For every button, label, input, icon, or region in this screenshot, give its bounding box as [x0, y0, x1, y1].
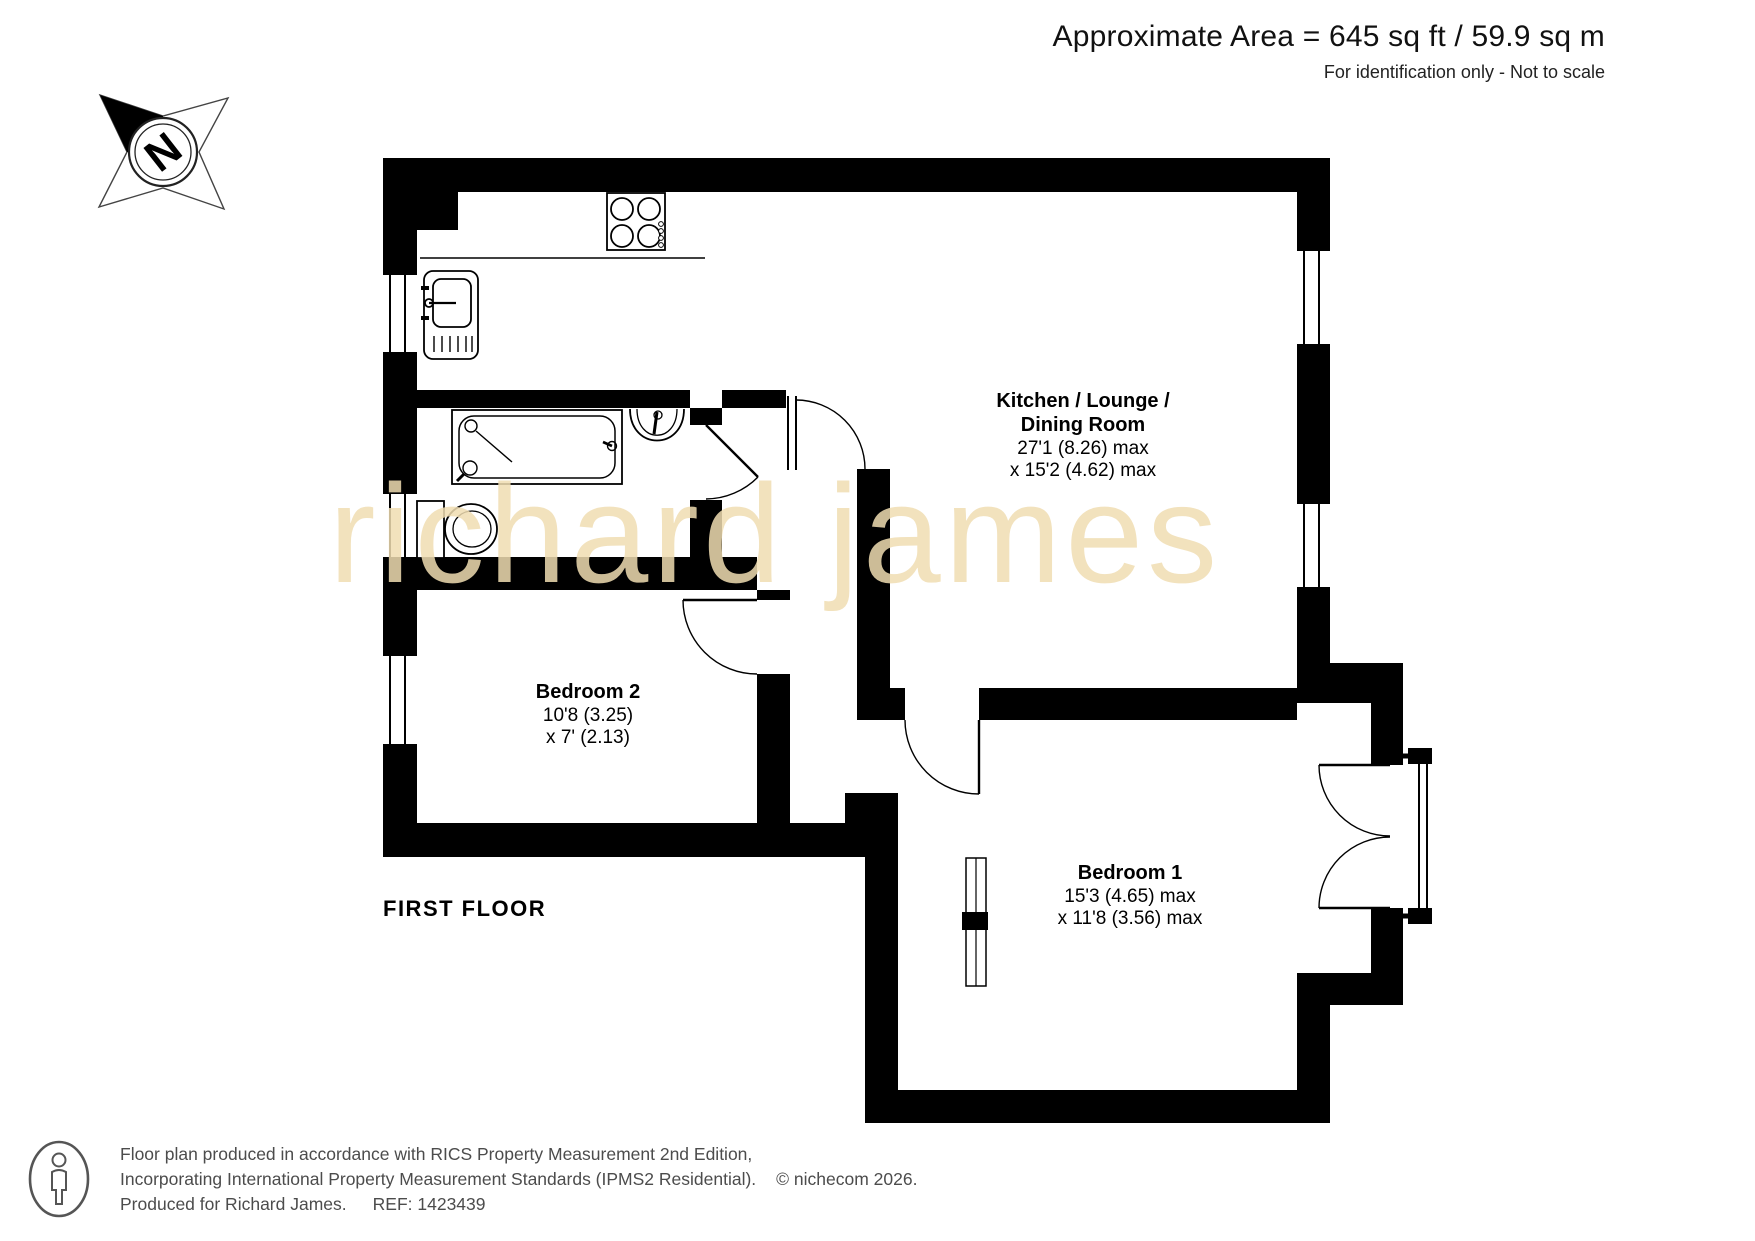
wall-kitchen-bath — [417, 390, 690, 408]
balcony-rail — [1403, 748, 1432, 924]
wall-right-1 — [1297, 192, 1330, 250]
wall-bedroom1-left — [865, 793, 898, 1123]
wall-lounge-bottom-b — [979, 688, 1297, 720]
window-kitchen — [383, 274, 417, 353]
footer-line-2-text: Incorporating International Property Mea… — [120, 1169, 756, 1189]
floor-label: FIRST FLOOR — [383, 896, 546, 921]
wall-bedroom1-right-down — [1371, 908, 1403, 973]
window-lounge-2 — [1297, 503, 1330, 588]
footer-text: Floor plan produced in accordance with R… — [120, 1142, 917, 1217]
kitchen-dim-1: 27'1 (8.26) max — [1017, 438, 1149, 459]
footer-line-3: Produced for Richard James.REF: 1423439 — [120, 1192, 917, 1217]
window-bedroom2 — [383, 655, 417, 745]
wall-bath-right-a — [690, 408, 722, 425]
walls — [383, 158, 1403, 1123]
hob-icon — [607, 193, 665, 250]
label-kitchen-lounge: Kitchen / Lounge / Dining Room 27'1 (8.2… — [996, 390, 1170, 481]
wall-step-back — [1297, 973, 1403, 1005]
person-logo-icon — [26, 1138, 92, 1220]
bedroom1-dim-2: x 11'8 (3.56) max — [1058, 908, 1203, 929]
kitchen-sink-icon — [421, 271, 478, 359]
wall-step-out — [1297, 663, 1403, 703]
footer: Floor plan produced in accordance with R… — [26, 1138, 917, 1220]
wash-basin-icon — [630, 409, 684, 441]
wall-right-2 — [1297, 345, 1330, 503]
footer-line-1: Floor plan produced in accordance with R… — [120, 1142, 917, 1167]
bedroom2-name: Bedroom 2 — [536, 681, 640, 703]
wall-hall-top — [722, 390, 786, 408]
wall-top — [383, 158, 1330, 192]
wall-bedroom2-right-b — [757, 674, 790, 823]
wardrobe-icon — [962, 858, 988, 986]
kitchen-name-1: Kitchen / Lounge / — [996, 390, 1170, 412]
wall-bedroom1-bottom — [865, 1090, 1330, 1123]
produced-for-text: Produced for Richard James. — [120, 1194, 347, 1214]
bedroom2-dim-1: 10'8 (3.25) — [543, 705, 633, 726]
wall-left-1 — [383, 192, 417, 274]
kitchen-dim-2: x 15'2 (4.62) max — [1010, 460, 1157, 481]
kitchen-name-2: Dining Room — [1021, 414, 1145, 436]
compass-rose-icon: N — [99, 95, 228, 209]
footer-line-2: Incorporating International Property Mea… — [120, 1167, 917, 1192]
door-bedroom1 — [905, 720, 979, 794]
bedroom1-dim-1: 15'3 (4.65) max — [1064, 886, 1196, 907]
bedroom1-name: Bedroom 1 — [1078, 862, 1182, 884]
wall-lounge-bottom-a — [890, 688, 905, 720]
wall-bedroom2-bottom — [383, 823, 845, 857]
copyright-text: © nichecom 2026. — [756, 1169, 917, 1189]
floorplan-page: Approximate Area = 645 sq ft / 59.9 sq m… — [0, 0, 1755, 1241]
bedroom2-dim-2: x 7' (2.13) — [546, 727, 630, 748]
label-bedroom2: Bedroom 2 10'8 (3.25) x 7' (2.13) — [536, 681, 640, 748]
wall-bedroom1-right-up — [1371, 703, 1403, 765]
reference-number: REF: 1423439 — [347, 1194, 486, 1214]
wall-right-3 — [1297, 588, 1330, 663]
floor-plan-drawing: N — [0, 0, 1755, 1241]
label-bedroom1: Bedroom 1 15'3 (4.65) max x 11'8 (3.56) … — [1058, 862, 1203, 929]
french-doors — [1319, 765, 1390, 908]
window-lounge-1 — [1297, 250, 1330, 345]
